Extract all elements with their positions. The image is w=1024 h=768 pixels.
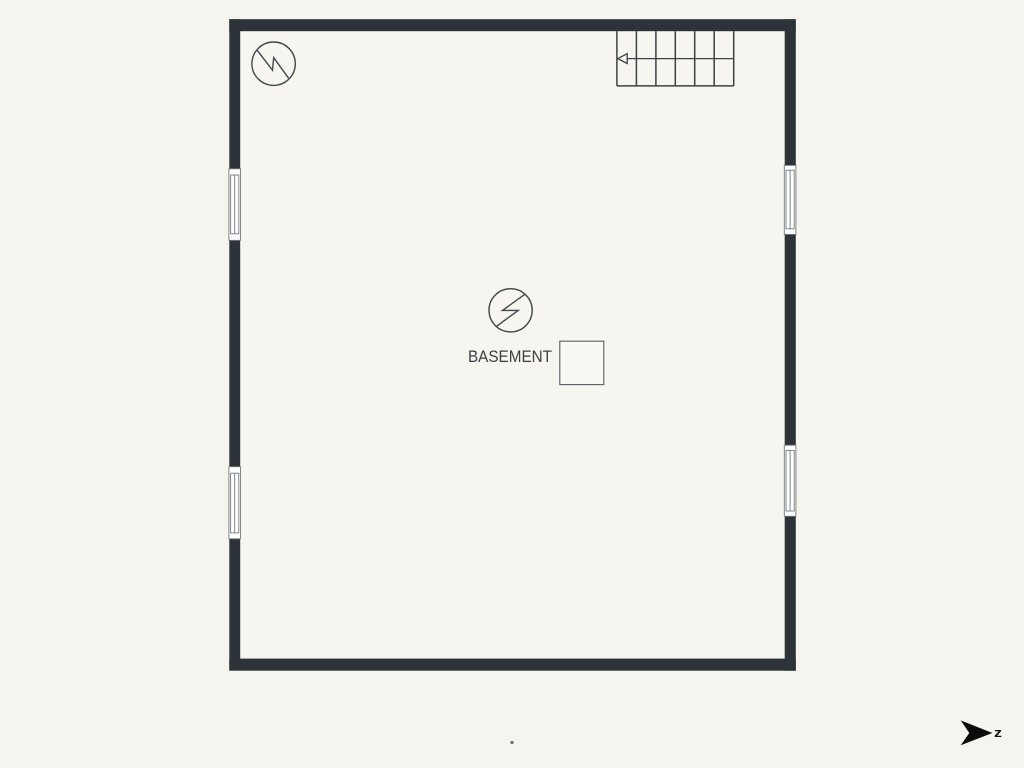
svg-text:BASEMENT: BASEMENT: [468, 347, 552, 366]
svg-text:z: z: [994, 725, 1003, 740]
